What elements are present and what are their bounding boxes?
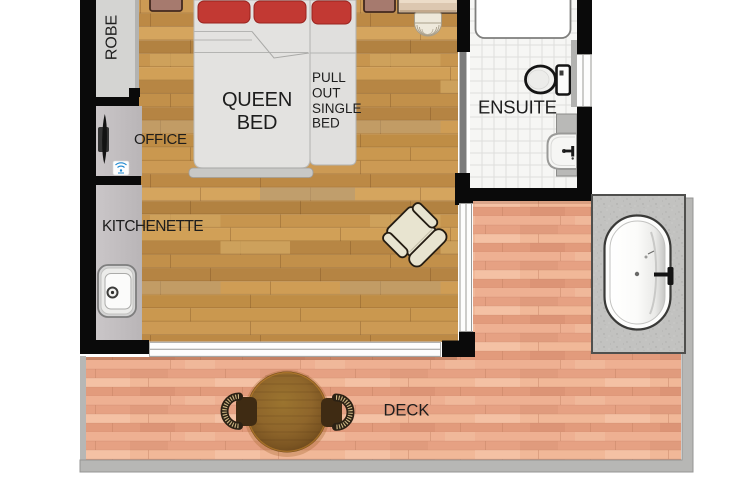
svg-text:BED: BED — [312, 116, 340, 131]
svg-text:ROBE: ROBE — [104, 15, 121, 60]
svg-text:ENSUITE: ENSUITE — [478, 97, 557, 118]
svg-text:BED: BED — [237, 112, 278, 134]
svg-text:KITCHENETTE: KITCHENETTE — [102, 218, 203, 235]
svg-text:SINGLE: SINGLE — [312, 101, 362, 116]
svg-text:OUT: OUT — [312, 86, 341, 101]
svg-text:DECK: DECK — [384, 402, 430, 420]
svg-text:PULL: PULL — [312, 70, 346, 85]
svg-text:OFFICE: OFFICE — [134, 131, 187, 148]
svg-text:QUEEN: QUEEN — [222, 89, 292, 111]
